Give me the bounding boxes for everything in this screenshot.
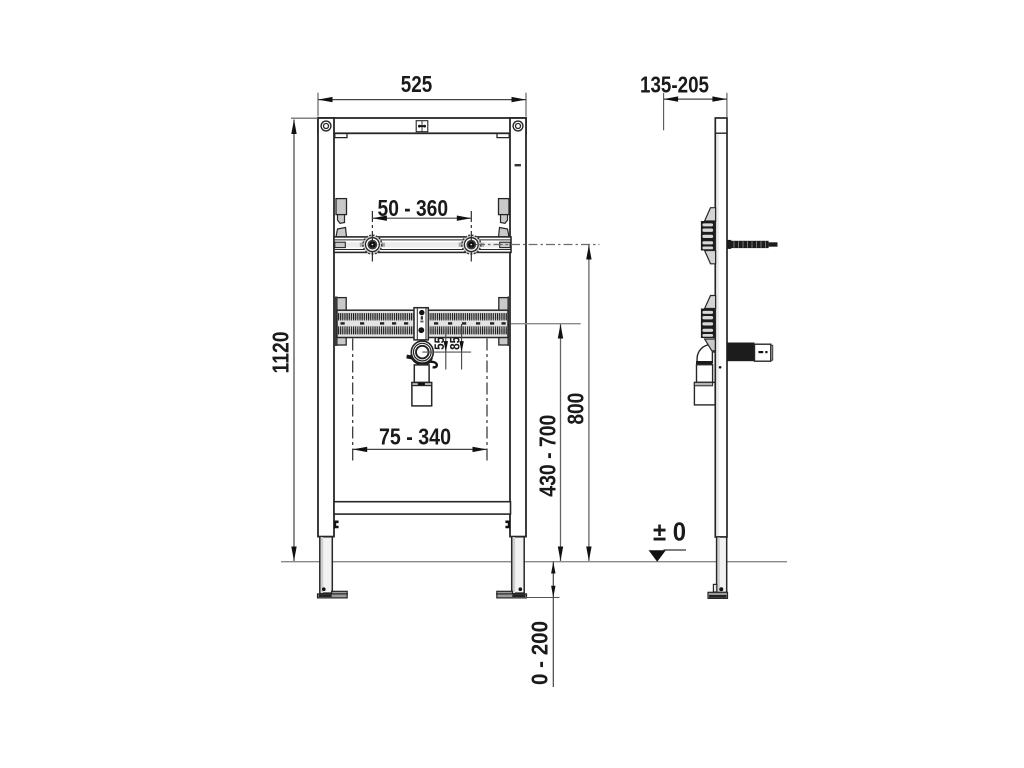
svg-text:75 - 340: 75 - 340 bbox=[379, 423, 451, 449]
svg-text:800: 800 bbox=[563, 393, 589, 425]
svg-text:55: 55 bbox=[431, 337, 447, 350]
svg-text:525: 525 bbox=[401, 71, 433, 97]
svg-text:0 - 200: 0 - 200 bbox=[527, 621, 553, 685]
svg-text:50 - 360: 50 - 360 bbox=[378, 195, 449, 221]
svg-text:430 - 700: 430 - 700 bbox=[534, 415, 560, 497]
svg-text:1120: 1120 bbox=[268, 332, 294, 374]
svg-text:85: 85 bbox=[447, 337, 463, 350]
svg-text:± 0: ± 0 bbox=[653, 517, 686, 547]
svg-text:135-205: 135-205 bbox=[640, 72, 709, 98]
